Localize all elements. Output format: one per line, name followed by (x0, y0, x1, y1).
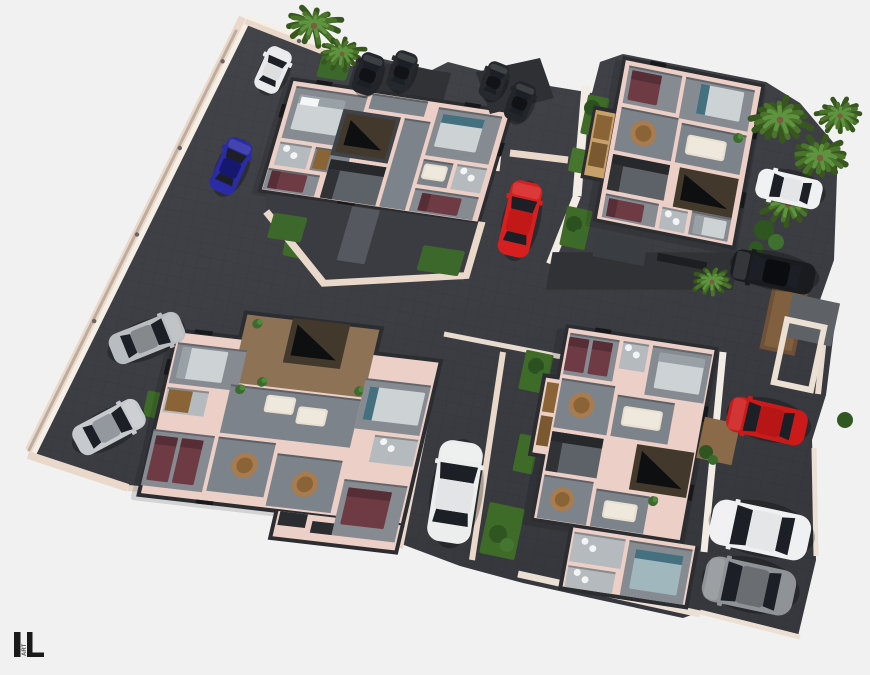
svg-text:ART: ART (22, 643, 28, 656)
